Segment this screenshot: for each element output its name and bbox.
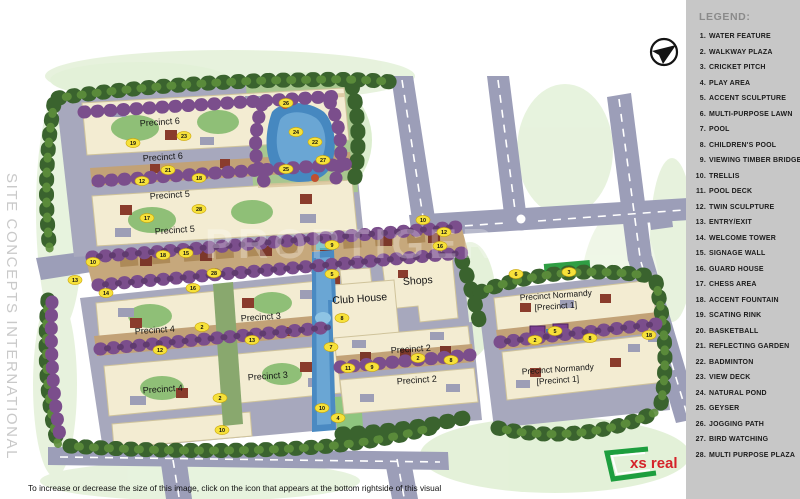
map-marker: 9 — [325, 240, 339, 249]
map-marker: 22 — [308, 137, 322, 146]
svg-text:24: 24 — [293, 130, 299, 136]
map-marker: 8 — [335, 313, 349, 322]
legend-panel: LEGEND: 1.WATER FEATURE2.WALKWAY PLAZA3.… — [686, 0, 800, 499]
svg-text:18: 18 — [646, 333, 652, 339]
svg-text:13: 13 — [72, 278, 78, 284]
map-marker: 26 — [279, 98, 293, 107]
svg-text:18: 18 — [196, 176, 202, 182]
legend-list: 1.WATER FEATURE2.WALKWAY PLAZA3.CRICKET … — [691, 29, 799, 463]
compass-icon — [651, 39, 677, 65]
svg-text:11: 11 — [345, 366, 351, 372]
map-marker: 21 — [161, 165, 175, 174]
svg-text:2: 2 — [201, 325, 204, 331]
svg-text:25: 25 — [283, 167, 289, 173]
site-plan-map[interactable]: PROPTIGER Precinct 6Precinct 6Precinct 5… — [0, 0, 800, 499]
map-marker: 18 — [192, 173, 206, 182]
svg-text:12: 12 — [157, 348, 163, 354]
map-marker: 6 — [509, 269, 523, 278]
svg-text:10: 10 — [90, 260, 96, 266]
map-marker: 12 — [135, 176, 149, 185]
svg-text:10: 10 — [420, 218, 426, 224]
map-marker: 16 — [433, 241, 447, 250]
legend-item: 5.ACCENT SCULPTURE — [691, 91, 799, 107]
resize-hint-caption: To increase or decrease the size of this… — [28, 483, 441, 493]
map-marker: 10 — [315, 403, 329, 412]
map-marker: 14 — [99, 288, 113, 297]
map-marker: 16 — [186, 283, 200, 292]
map-marker: 12 — [153, 345, 167, 354]
legend-item: 9.VIEWING TIMBER BRIDGE — [691, 153, 799, 169]
legend-item: 10.TRELLIS — [691, 169, 799, 185]
xs-real-logo-text: xs real — [630, 455, 678, 472]
map-marker: 10 — [416, 215, 430, 224]
map-marker: 28 — [192, 204, 206, 213]
map-label: Shops — [403, 274, 434, 288]
map-marker: 5 — [548, 326, 562, 335]
map-marker: 5 — [325, 269, 339, 278]
legend-item: 17.CHESS AREA — [691, 277, 799, 293]
svg-text:22: 22 — [312, 140, 318, 146]
svg-text:7: 7 — [330, 345, 333, 351]
legend-item: 27.BIRD WATCHING — [691, 432, 799, 448]
legend-item: 3.CRICKET PITCH — [691, 60, 799, 76]
svg-text:2: 2 — [219, 396, 222, 402]
svg-text:3: 3 — [568, 270, 571, 276]
svg-text:16: 16 — [437, 244, 443, 250]
svg-text:9: 9 — [331, 243, 334, 249]
svg-text:2: 2 — [534, 338, 537, 344]
svg-text:10: 10 — [319, 406, 325, 412]
legend-item: 22.BADMINTON — [691, 355, 799, 371]
map-marker: 2 — [411, 353, 425, 362]
svg-text:16: 16 — [190, 286, 196, 292]
svg-text:8: 8 — [450, 358, 453, 364]
legend-item: 16.GUARD HOUSE — [691, 262, 799, 278]
svg-text:18: 18 — [160, 253, 166, 259]
svg-text:14: 14 — [103, 291, 109, 297]
map-marker: 9 — [365, 362, 379, 371]
svg-text:10: 10 — [219, 428, 225, 434]
svg-text:27: 27 — [320, 158, 326, 164]
map-marker: 3 — [562, 267, 576, 276]
map-marker: 27 — [316, 155, 330, 164]
map-marker: 18 — [642, 330, 656, 339]
map-marker: 2 — [528, 335, 542, 344]
svg-text:28: 28 — [211, 271, 217, 277]
map-marker: 17 — [140, 213, 154, 222]
legend-item: 18.ACCENT FOUNTAIN — [691, 293, 799, 309]
legend-item: 14.WELCOME TOWER — [691, 231, 799, 247]
svg-text:23: 23 — [181, 134, 187, 140]
svg-text:13: 13 — [249, 338, 255, 344]
roundabout — [510, 208, 533, 231]
legend-item: 2.WALKWAY PLAZA — [691, 45, 799, 61]
svg-text:28: 28 — [196, 207, 202, 213]
svg-text:8: 8 — [341, 316, 344, 322]
legend-item: 19.SCATING RINK — [691, 308, 799, 324]
legend-item: 26.JOGGING PATH — [691, 417, 799, 433]
map-marker: 12 — [437, 227, 451, 236]
svg-text:26: 26 — [283, 101, 289, 107]
map-marker: 7 — [324, 342, 338, 351]
legend-item: 12.TWIN SCULPTURE — [691, 200, 799, 216]
svg-text:15: 15 — [183, 251, 189, 257]
svg-text:5: 5 — [554, 329, 557, 335]
svg-text:8: 8 — [589, 336, 592, 342]
svg-text:17: 17 — [144, 216, 150, 222]
legend-item: 21.REFLECTING GARDEN — [691, 339, 799, 355]
map-marker: 8 — [444, 355, 458, 364]
legend-item: 1.WATER FEATURE — [691, 29, 799, 45]
svg-text:9: 9 — [371, 365, 374, 371]
legend-item: 24.NATURAL POND — [691, 386, 799, 402]
legend-item: 7.POOL — [691, 122, 799, 138]
map-marker: 2 — [195, 322, 209, 331]
legend-item: 23.VIEW DECK — [691, 370, 799, 386]
svg-text:4: 4 — [337, 416, 340, 422]
legend-item: 20.BASKETBALL — [691, 324, 799, 340]
map-marker: 28 — [207, 268, 221, 277]
legend-item: 11.POOL DECK — [691, 184, 799, 200]
site-plan-page: SITE CONCEPTS INTERNATIONAL — [0, 0, 800, 499]
svg-text:2: 2 — [417, 356, 420, 362]
svg-text:12: 12 — [139, 179, 145, 185]
map-marker: 11 — [341, 363, 355, 372]
map-marker: 23 — [177, 131, 191, 140]
map-marker: 8 — [583, 333, 597, 342]
svg-text:5: 5 — [331, 272, 334, 278]
legend-item: 8.CHILDREN'S POOL — [691, 138, 799, 154]
svg-text:12: 12 — [441, 230, 447, 236]
map-watermark-text: PROPTIGER — [205, 220, 497, 267]
map-marker: 24 — [289, 127, 303, 136]
map-marker: 4 — [331, 413, 345, 422]
map-marker: 13 — [245, 335, 259, 344]
map-marker: 15 — [179, 248, 193, 257]
map-marker: 25 — [279, 164, 293, 173]
legend-item: 28.MULTI PURPOSE PLAZA — [691, 448, 799, 464]
legend-title: LEGEND: — [699, 11, 750, 23]
legend-item: 13.ENTRY/EXIT — [691, 215, 799, 231]
map-marker: 10 — [86, 257, 100, 266]
svg-text:19: 19 — [130, 141, 136, 147]
map-marker: 13 — [68, 275, 82, 284]
svg-text:21: 21 — [165, 168, 171, 174]
svg-text:6: 6 — [515, 272, 518, 278]
legend-item: 6.MULTI-PURPOSE LAWN — [691, 107, 799, 123]
legend-item: 25.GEYSER — [691, 401, 799, 417]
map-marker: 19 — [126, 138, 140, 147]
legend-item: 4.PLAY AREA — [691, 76, 799, 92]
map-marker: 18 — [156, 250, 170, 259]
map-marker: 10 — [215, 425, 229, 434]
map-marker: 2 — [213, 393, 227, 402]
legend-item: 15.SIGNAGE WALL — [691, 246, 799, 262]
